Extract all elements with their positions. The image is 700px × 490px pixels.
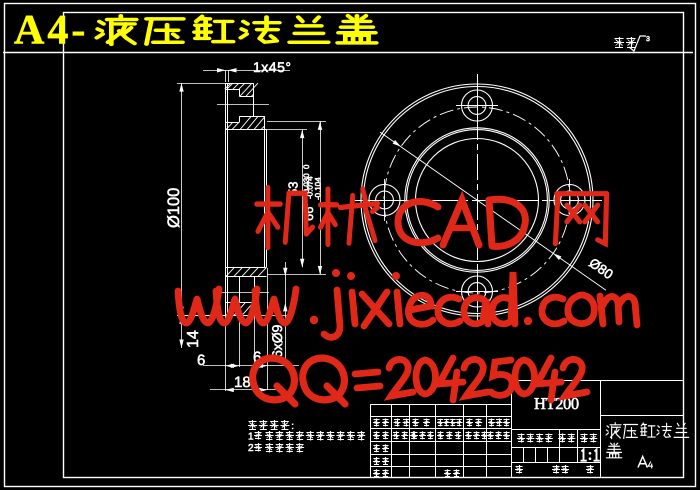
svg-text:0: 0	[302, 164, 311, 169]
svg-text:1x45°: 1x45°	[253, 59, 291, 75]
svg-text:14: 14	[185, 330, 202, 348]
svg-text:2: 2	[248, 443, 254, 454]
svg-text:6: 6	[197, 352, 205, 369]
svg-text:Ø100: Ø100	[165, 188, 183, 228]
svg-text::: :	[291, 421, 294, 432]
svg-text:A4-: A4-	[14, 8, 88, 54]
svg-text:3: 3	[646, 36, 650, 43]
svg-text:6xØ9: 6xØ9	[269, 324, 285, 358]
svg-text:1: 1	[248, 432, 254, 443]
svg-text:-0.104: -0.104	[314, 177, 323, 200]
svg-text:18: 18	[234, 374, 251, 391]
